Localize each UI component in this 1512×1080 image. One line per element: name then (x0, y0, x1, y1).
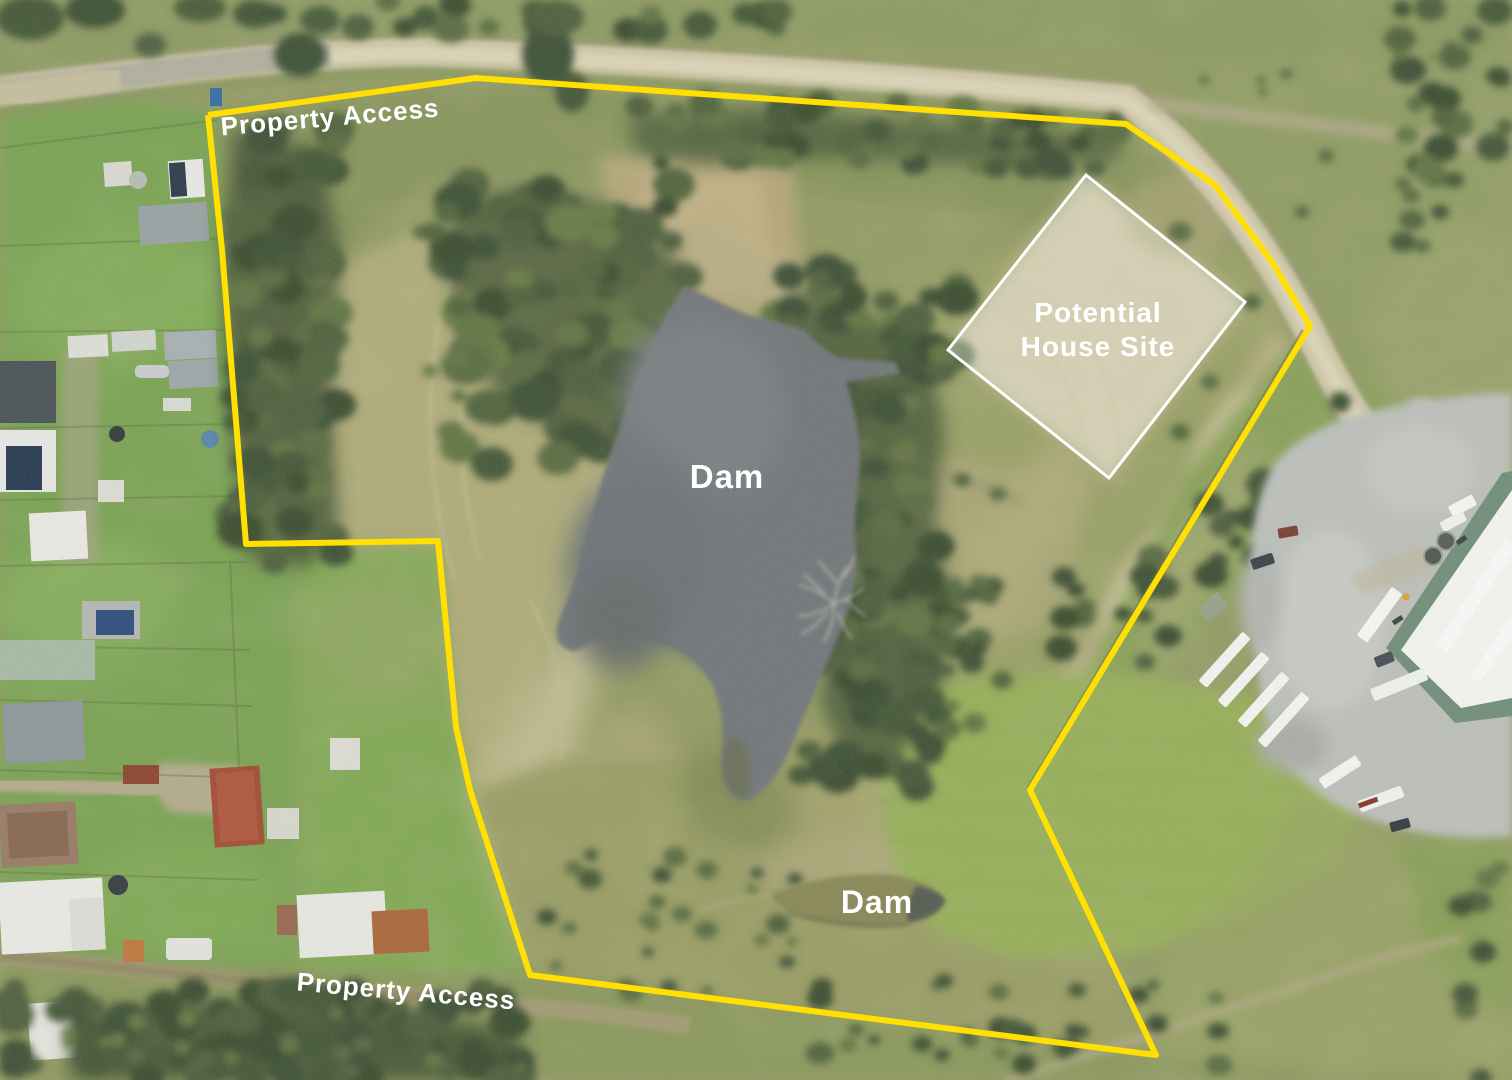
svg-text:Dam: Dam (841, 884, 913, 920)
svg-text:Potential: Potential (1034, 297, 1161, 328)
svg-text:Dam: Dam (690, 458, 765, 495)
svg-text:House Site: House Site (1021, 331, 1176, 362)
